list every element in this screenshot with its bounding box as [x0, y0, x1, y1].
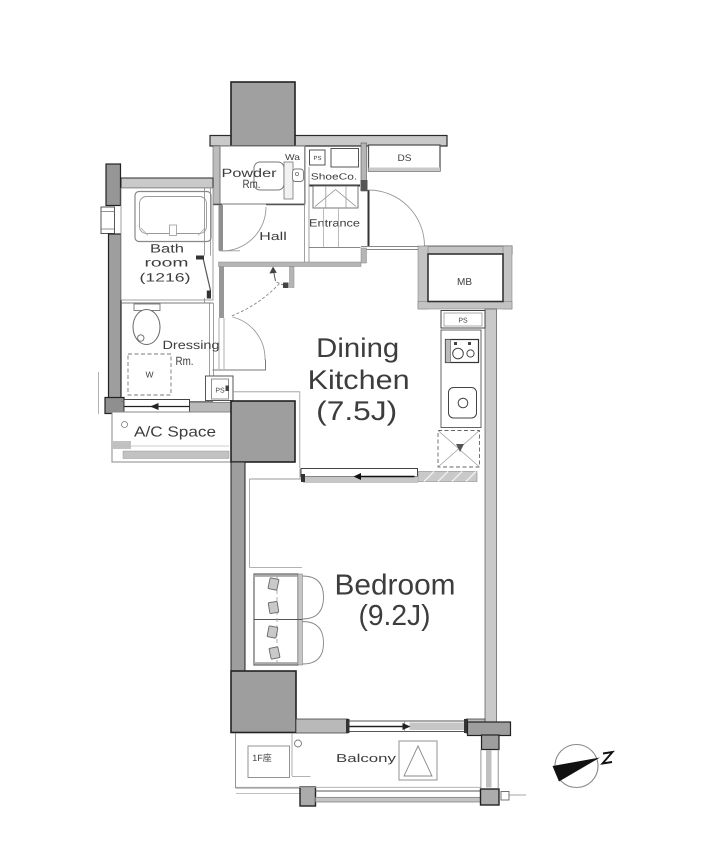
svg-text:room: room: [145, 256, 189, 270]
svg-text:Kitchen: Kitchen: [308, 365, 410, 395]
svg-text:Balcony: Balcony: [336, 753, 396, 765]
svg-text:ShoeCo.: ShoeCo.: [311, 172, 358, 182]
svg-text:Hall: Hall: [259, 231, 287, 243]
svg-text:MB: MB: [457, 277, 472, 288]
svg-text:Wa: Wa: [285, 152, 300, 162]
svg-text:1F座: 1F座: [252, 753, 272, 763]
svg-text:(9.2J): (9.2J): [359, 600, 431, 632]
svg-text:Rm.: Rm.: [176, 354, 194, 368]
svg-text:Dining: Dining: [316, 333, 399, 363]
svg-text:W: W: [145, 370, 153, 380]
svg-text:PS: PS: [313, 155, 321, 162]
svg-text:(1216): (1216): [140, 271, 191, 285]
svg-text:Bath: Bath: [150, 242, 184, 256]
svg-text:PS: PS: [215, 388, 225, 395]
svg-text:A/C Space: A/C Space: [134, 425, 216, 441]
svg-text:Entrance: Entrance: [309, 218, 360, 230]
svg-text:DS: DS: [398, 153, 412, 164]
svg-text:(7.5J): (7.5J): [316, 396, 397, 426]
svg-text:Dressing: Dressing: [163, 338, 220, 352]
svg-text:Rm.: Rm.: [243, 177, 261, 191]
svg-text:PS: PS: [458, 318, 468, 325]
svg-text:Bedroom: Bedroom: [335, 570, 456, 602]
